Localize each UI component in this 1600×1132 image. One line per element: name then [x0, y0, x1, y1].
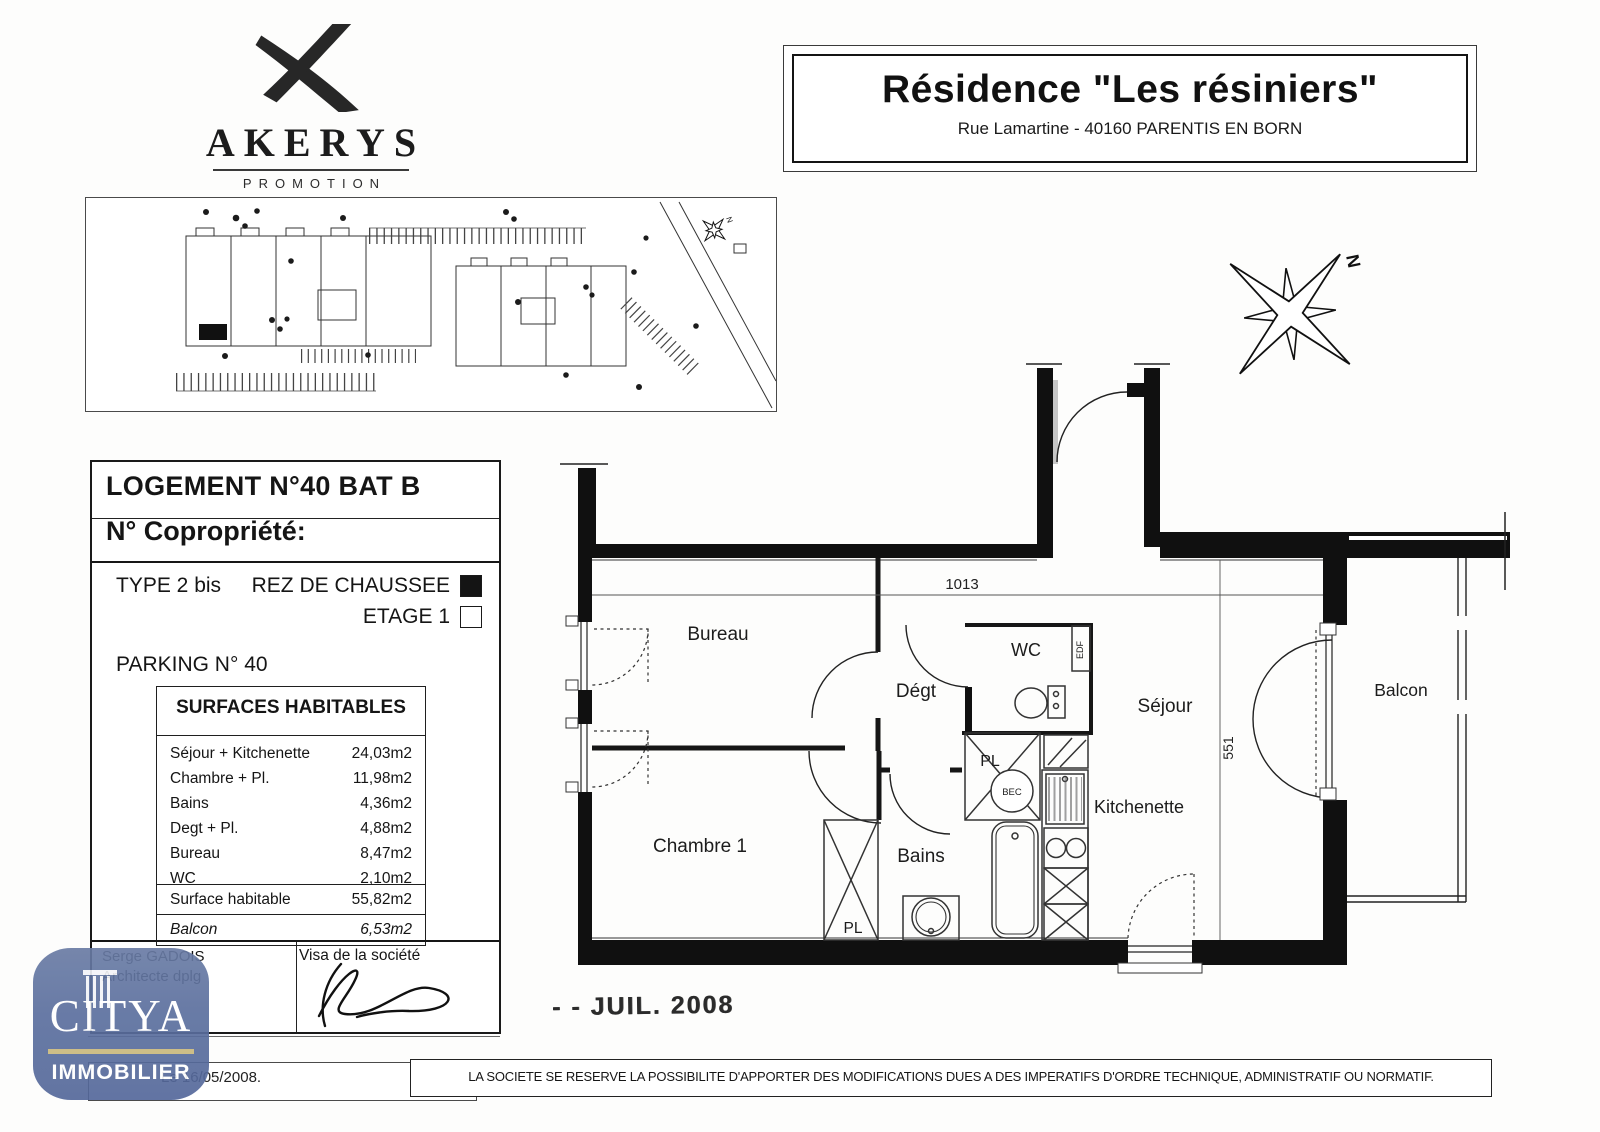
- railing-gap: [1452, 616, 1470, 630]
- window-sills: [566, 616, 1336, 973]
- surface-label: Bureau: [170, 845, 220, 870]
- room-label-sejour: Séjour: [1138, 696, 1194, 717]
- balcon-row: Balcon 6,53m2: [157, 914, 425, 939]
- stove-burner: [1047, 839, 1066, 858]
- railing-gap: [1452, 700, 1470, 714]
- site-north-label: N: [724, 216, 735, 225]
- dim-height-label: 551: [1220, 736, 1236, 760]
- surface-row: Bains 4,36m2: [170, 795, 412, 820]
- surface-row: Chambre + Pl. 11,98m2: [170, 770, 412, 795]
- surface-value: 4,36m2: [360, 795, 412, 820]
- site-compass-icon: N: [694, 210, 734, 249]
- surface-value: 24,03m2: [352, 745, 412, 770]
- akerys-logo: AKERYS PROMOTION: [205, 24, 417, 191]
- surface-value: 4,88m2: [360, 820, 412, 845]
- surface-label: Chambre + Pl.: [170, 770, 270, 795]
- bec-label: BEC: [1002, 787, 1022, 798]
- room-label-wc: WC: [1011, 640, 1041, 660]
- date-stamp: - - JUIL. 2008: [552, 991, 735, 1023]
- surfaces-table: SURFACES HABITABLES Séjour + Kitchenette…: [156, 686, 426, 946]
- surfaces-header: SURFACES HABITABLES: [157, 687, 425, 736]
- citya-name: CITYA: [33, 990, 209, 1042]
- floor-plan-document: AKERYS PROMOTION Résidence "Les résinier…: [0, 0, 1600, 1132]
- title-box: Résidence "Les résiniers" Rue Lamartine …: [783, 45, 1477, 172]
- citya-gold-rule: [48, 1049, 194, 1054]
- surface-label: Bains: [170, 795, 209, 820]
- closet-label-pl: PL: [844, 920, 863, 937]
- rdc-checkbox-filled: [460, 575, 482, 597]
- parking-label: PARKING N° 40: [116, 653, 268, 677]
- akerys-mark-icon: [246, 24, 376, 112]
- room-label-balcon: Balcon: [1374, 680, 1428, 700]
- balcon-label: Balcon: [170, 921, 217, 939]
- column-icon: [83, 970, 117, 975]
- copropriete-label: N° Copropriété:: [92, 510, 499, 563]
- disclaimer: LA SOCIETE SE RESERVE LA POSSIBILITE D'A…: [410, 1059, 1492, 1097]
- citya-logo: CITYA IMMOBILIER: [33, 948, 209, 1100]
- balcony-wall-groove: [1349, 536, 1507, 540]
- signature-icon: [301, 956, 481, 1034]
- compass-north-label: N: [1342, 253, 1364, 270]
- surface-row: Séjour + Kitchenette 24,03m2: [170, 745, 412, 770]
- residence-title: Résidence "Les résiniers": [794, 68, 1466, 112]
- etage1-checkbox-empty: [460, 606, 482, 628]
- window-panes: [581, 622, 1332, 952]
- closet-label-pl: PL: [980, 753, 1000, 770]
- room-label-degt: Dégt: [896, 681, 937, 702]
- type-label: TYPE 2 bis: [116, 574, 221, 598]
- floor-plan-drawing: 1013 551 Bureau Dégt WC Séjour Balcon Ch…: [540, 340, 1540, 1012]
- dim-width-label: 1013: [945, 576, 978, 593]
- fixtures: [824, 626, 1090, 940]
- akerys-name: AKERYS: [205, 119, 426, 166]
- room-label-chambre: Chambre 1: [653, 836, 747, 857]
- surface-total-row: Surface habitable 55,82m2: [157, 884, 425, 915]
- title-box-inner: Résidence "Les résiniers" Rue Lamartine …: [792, 54, 1468, 163]
- floor-option-etage1: ETAGE 1: [212, 605, 450, 629]
- surface-total-label: Surface habitable: [170, 891, 291, 915]
- edf-label: EDF: [1075, 640, 1085, 659]
- stove-burner: [1067, 839, 1086, 858]
- surface-row: Bureau 8,47m2: [170, 845, 412, 870]
- citya-subtitle: IMMOBILIER: [33, 1060, 209, 1085]
- residence-address: Rue Lamartine - 40160 PARENTIS EN BORN: [794, 119, 1466, 139]
- visa-cell: Visa de la société: [287, 942, 499, 1032]
- balcony-outline: [1347, 558, 1466, 902]
- surface-label: Degt + Pl.: [170, 820, 239, 845]
- highlighted-unit: [199, 324, 227, 340]
- surface-value: 11,98m2: [353, 770, 412, 795]
- balcon-value: 6,53m2: [360, 921, 412, 939]
- window-swings: [592, 629, 1316, 938]
- surface-label: Séjour + Kitchenette: [170, 745, 310, 770]
- floor-option-rdc: REZ DE CHAUSSEE: [212, 574, 450, 598]
- surface-row: Degt + Pl. 4,88m2: [170, 820, 412, 845]
- room-label-bureau: Bureau: [687, 624, 748, 645]
- akerys-tagline: PROMOTION: [205, 176, 424, 191]
- room-label-bains: Bains: [897, 846, 945, 867]
- surface-total-value: 55,82m2: [352, 891, 412, 915]
- akerys-divider: [213, 169, 409, 171]
- room-label-kitchenette: Kitchenette: [1094, 797, 1184, 817]
- toilet-icon: [1015, 688, 1047, 718]
- surface-value: 8,47m2: [360, 845, 412, 870]
